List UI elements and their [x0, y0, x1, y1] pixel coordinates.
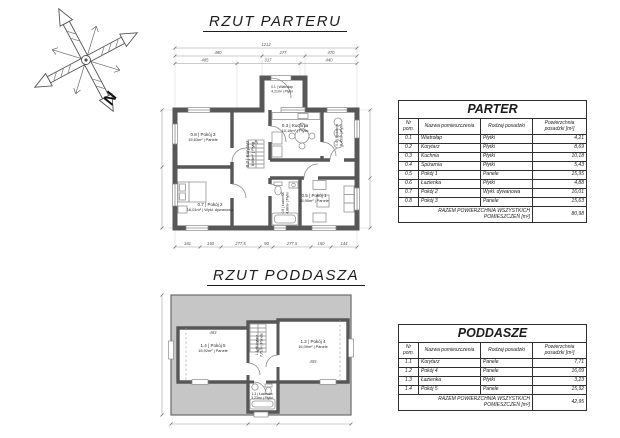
room-label-spizarnia: 0.4 | Spiżarnia 5,43m² | Płytki: [335, 124, 344, 146]
svg-text:317: 317: [265, 58, 273, 63]
bathtub-icon: [272, 213, 298, 225]
svg-text:480: 480: [215, 50, 223, 55]
attic-sink-icon: [252, 384, 258, 390]
sink-icon: [289, 182, 298, 188]
room-label-lazienka: 0.6 | Łazienka 4,88m² | Płytki: [281, 192, 290, 214]
compass-rose: N: [28, 8, 153, 123]
table-row: 1.4Pokój 5Panele15,92: [399, 386, 587, 395]
svg-text:5,43m² | Płytki: 5,43m² | Płytki: [340, 124, 344, 146]
svg-text:485: 485: [202, 58, 210, 63]
attic-dim-bottom: [170, 423, 353, 426]
attic-dim-room-left: 483: [210, 330, 218, 335]
room-label-korytarz: 0.2 | Korytarz 8,69m² | Płytki: [245, 140, 255, 167]
svg-text:277: 277: [279, 50, 288, 55]
drawing-sheet: N RZUT PARTERU 1212 480 277 470: [0, 0, 620, 438]
room-label-kuchnia: 0.3 | Kuchnia 10,18m² | Płytki: [282, 123, 309, 133]
room-label-korytarz-attic: 1.1 | Korytarz 7,71m² | Panele: [255, 333, 264, 357]
dimension-chain-right: [369, 109, 372, 230]
svg-text:16,01m² | Wykł. dywanowa: 16,01m² | Wykł. dywanowa: [187, 207, 234, 212]
room-label-wiatrolap: 0.1 | Wiatrołap 4,21m² | Płytki: [271, 85, 293, 94]
svg-text:4,88m² | Płytki: 4,88m² | Płytki: [286, 192, 290, 214]
svg-text:455: 455: [310, 359, 318, 364]
attic-dim-room-right: 455: [310, 359, 318, 364]
svg-text:0.4 | Spiżarnia: 0.4 | Spiżarnia: [335, 124, 339, 146]
svg-text:10,18m² | Płytki: 10,18m² | Płytki: [282, 128, 309, 133]
svg-text:16,09m² | Panele: 16,09m² | Panele: [298, 344, 328, 349]
table-row: 0.5Pokój 1Panele15,95: [399, 171, 587, 180]
table-header-row: Nr pom. Nazwa pomieszczenia Rodzaj posad…: [399, 119, 587, 135]
poddasze-table-title: PODDASZE: [399, 325, 587, 343]
north-label: N: [101, 89, 122, 108]
svg-text:470: 470: [328, 50, 336, 55]
svg-text:4,21m² | Płytki: 4,21m² | Płytki: [271, 90, 293, 94]
table-row: 1.1KorytarzPanele7,71: [399, 359, 587, 368]
room-label-pokoj1: 0.5 | Pokój 1 15,95m² | Panele: [299, 193, 329, 203]
table-row: 0.7Pokój 2Wykł. dywanowa16,01: [399, 189, 587, 198]
table-row: 0.2KorytarzPłytki8,69: [399, 144, 587, 153]
room-label-pokoj3: 0.8 | Pokój 3 15,63m² | Panele: [188, 132, 218, 142]
svg-text:483: 483: [210, 330, 218, 335]
table-row: 0.4SpiżarniaPłytki5,43: [399, 162, 587, 171]
dim-overall: 1212: [261, 42, 271, 47]
dimension-chain-top: 1212 480 277 470 485 317 440: [174, 42, 359, 65]
svg-text:8,69m² | Płytki: 8,69m² | Płytki: [250, 142, 255, 167]
svg-text:181: 181: [184, 241, 191, 246]
table-row: 0.6ŁazienkaPłytki4,88: [399, 180, 587, 189]
room-label-lazienka-attic: 1.3 | Łazienka 3,23m² | Płytki: [251, 392, 273, 400]
svg-text:150: 150: [318, 241, 326, 246]
table-row: 0.8Pokój 3Panele15,63: [399, 198, 587, 207]
table-row: 1.3ŁazienkaPłytki3,23: [399, 377, 587, 386]
compass-star-icon: [28, 8, 153, 123]
parter-table-title: PARTER: [399, 101, 587, 119]
table-row: 0.3KuchniaPłytki10,18: [399, 153, 587, 162]
table-row: 1.2Pokój 4Panele16,09: [399, 368, 587, 377]
poddasze-table: PODDASZE Nr pom. Nazwa pomieszczenia Rod…: [398, 324, 587, 411]
svg-text:277,5: 277,5: [286, 241, 298, 246]
svg-text:15,63m² | Panele: 15,63m² | Panele: [188, 137, 218, 142]
parter-title: RZUT PARTERU: [203, 13, 347, 32]
attic-bathtub-icon: [250, 399, 275, 409]
svg-text:15,92m² | Panele: 15,92m² | Panele: [198, 348, 228, 353]
svg-text:144: 144: [341, 241, 349, 246]
sofa-icon: [344, 186, 354, 212]
table-total-row: RAZEM POWIERZCHNIA WSZYSTKICH POMIESZCZE…: [399, 207, 587, 223]
svg-text:440: 440: [326, 58, 334, 63]
parter-plan: 1212 480 277 470 485 317 440: [148, 36, 398, 266]
svg-text:150: 150: [207, 241, 215, 246]
attic-dim-left: [161, 294, 164, 417]
dimension-chain-left: [161, 109, 164, 230]
svg-text:1.1 | Korytarz: 1.1 | Korytarz: [255, 335, 259, 355]
poddasze-plan: 1.4 | Pokój 5 15,92m² | Panele 483 1.2 |…: [148, 283, 398, 435]
svg-text:277,5: 277,5: [234, 241, 246, 246]
room-label-pokoj4: 1.2 | Pokój 4 16,09m² | Panele: [298, 339, 328, 349]
svg-text:0.6 | Łazienka: 0.6 | Łazienka: [281, 192, 285, 213]
svg-text:7,71m² | Panele: 7,71m² | Panele: [260, 333, 264, 357]
table-row: 0.1WiatrołapPłytki4,21: [399, 135, 587, 144]
svg-text:3,23m² | Płytki: 3,23m² | Płytki: [251, 396, 273, 400]
parter-table: PARTER Nr pom. Nazwa pomieszczenia Rodza…: [398, 100, 587, 223]
dimension-chain-bottom: 181 150 277,5 90 277,5 150 144: [174, 241, 359, 248]
room-label-pokoj5: 1.4 | Pokój 5 15,92m² | Panele: [198, 343, 228, 353]
svg-text:0.1 | Wiatrołap: 0.1 | Wiatrołap: [271, 85, 293, 89]
svg-text:90: 90: [264, 241, 269, 246]
svg-text:15,95m² | Panele: 15,95m² | Panele: [299, 198, 329, 203]
table-header-row: Nr pom. Nazwa pomieszczenia Rodzaj posad…: [399, 343, 587, 359]
table-total-row: RAZEM POWIERZCHNIA WSZYSTKICH POMIESZCZE…: [399, 395, 587, 411]
